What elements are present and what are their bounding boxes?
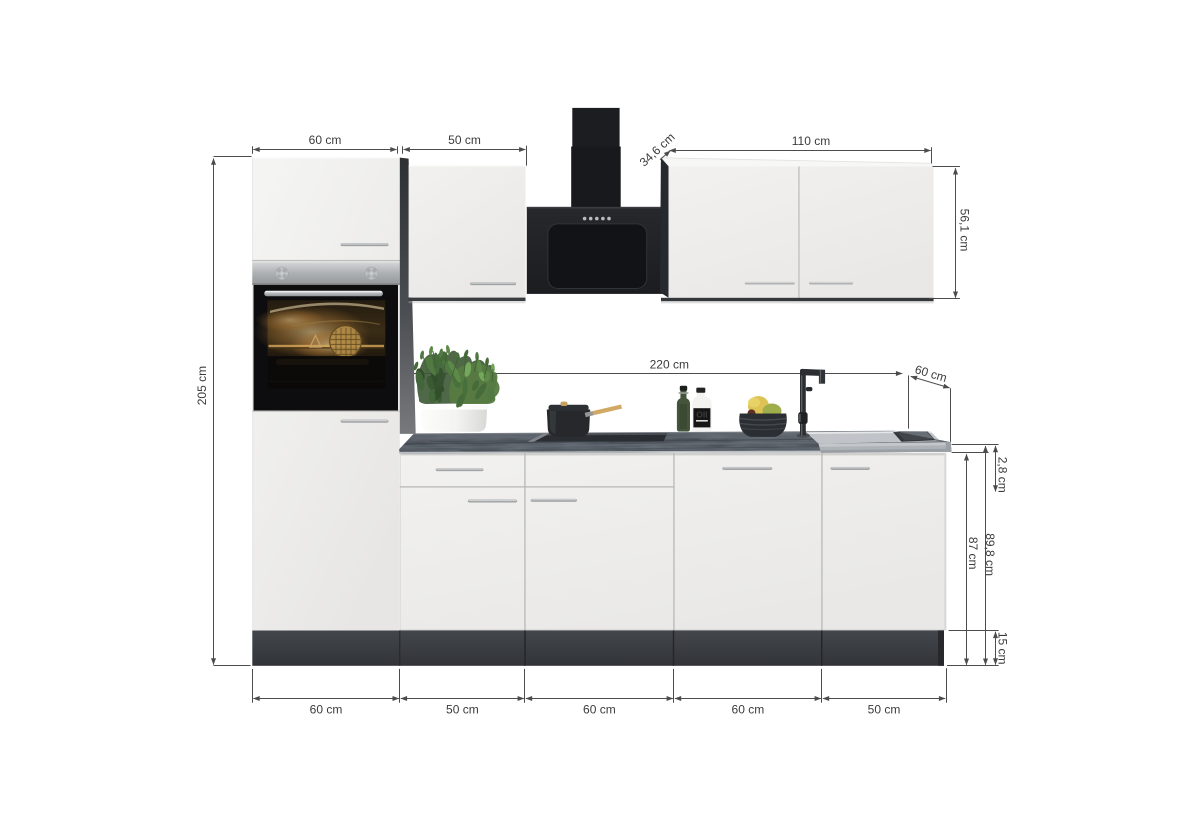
svg-text:50 cm: 50 cm [868,703,901,717]
svg-text:87 cm: 87 cm [966,537,980,570]
svg-text:60 cm: 60 cm [310,703,343,717]
svg-text:15 cm: 15 cm [996,632,1010,665]
svg-text:205 cm: 205 cm [195,366,209,405]
svg-text:OIl: OIl [696,410,707,420]
svg-text:60 cm: 60 cm [732,703,765,717]
svg-text:110 cm: 110 cm [792,134,830,148]
svg-text:60 cm: 60 cm [583,703,616,717]
svg-text:60 cm: 60 cm [309,133,342,147]
svg-text:50 cm: 50 cm [448,133,481,147]
svg-text:56,1 cm: 56,1 cm [957,209,971,252]
svg-text:89,8 cm: 89,8 cm [983,533,997,576]
svg-text:2,8 cm: 2,8 cm [996,457,1010,493]
svg-text:220 cm: 220 cm [650,358,689,372]
svg-text:50 cm: 50 cm [446,703,479,717]
